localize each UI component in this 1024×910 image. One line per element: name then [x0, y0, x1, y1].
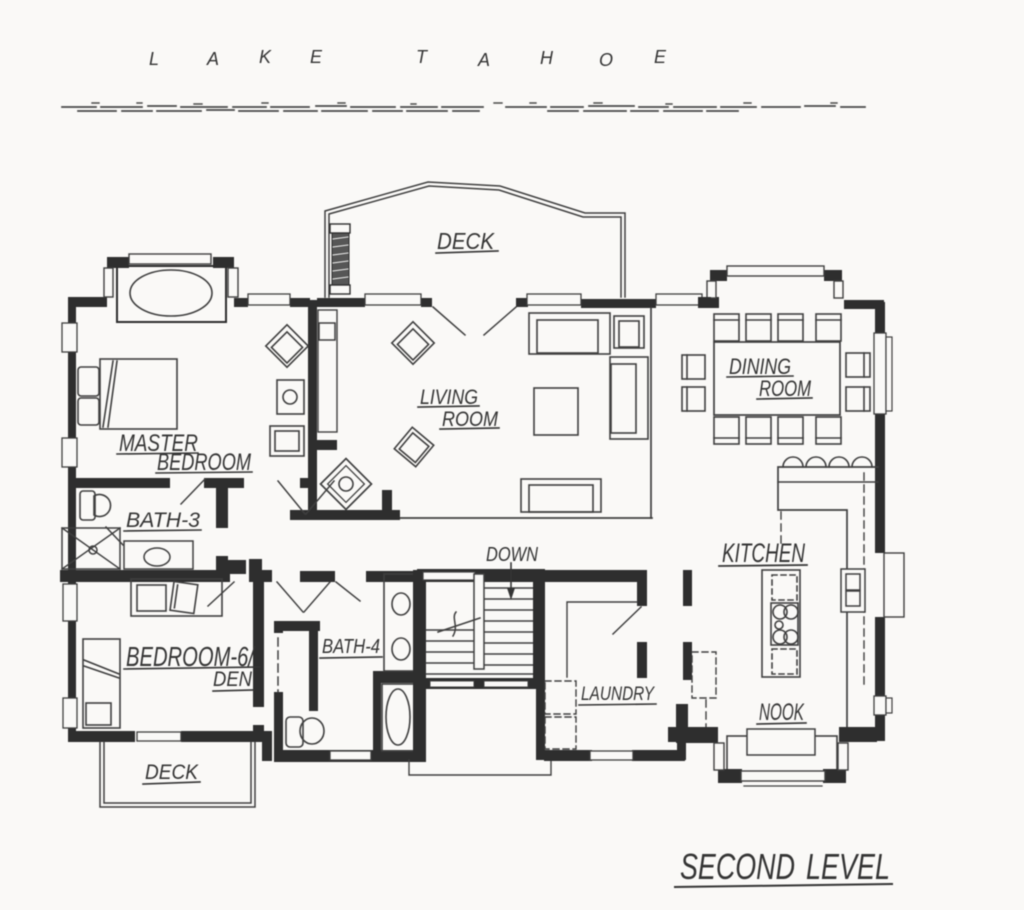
svg-text:E: E [310, 47, 323, 67]
svg-text:ROOM: ROOM [759, 376, 812, 401]
svg-text:K: K [259, 47, 272, 67]
svg-text:BATH-4: BATH-4 [322, 636, 380, 658]
svg-text:L: L [149, 49, 159, 69]
svg-text:NOOK: NOOK [759, 699, 805, 726]
svg-text:LAUNDRY: LAUNDRY [581, 684, 655, 705]
svg-text:A: A [206, 49, 219, 69]
svg-text:A: A [477, 50, 490, 70]
svg-text:O: O [599, 50, 613, 70]
svg-text:DEN: DEN [213, 668, 253, 691]
svg-text:H: H [540, 48, 554, 68]
svg-text:T: T [416, 47, 429, 67]
svg-text:SECOND: SECOND [680, 846, 795, 887]
svg-text:DECK: DECK [145, 761, 199, 784]
svg-text:BATH-3: BATH-3 [126, 509, 200, 532]
svg-text:KITCHEN: KITCHEN [722, 538, 805, 568]
svg-text:DECK: DECK [437, 228, 495, 254]
svg-text:DOWN: DOWN [486, 544, 538, 566]
svg-text:LEVEL: LEVEL [806, 846, 890, 887]
svg-text:E: E [654, 47, 667, 67]
